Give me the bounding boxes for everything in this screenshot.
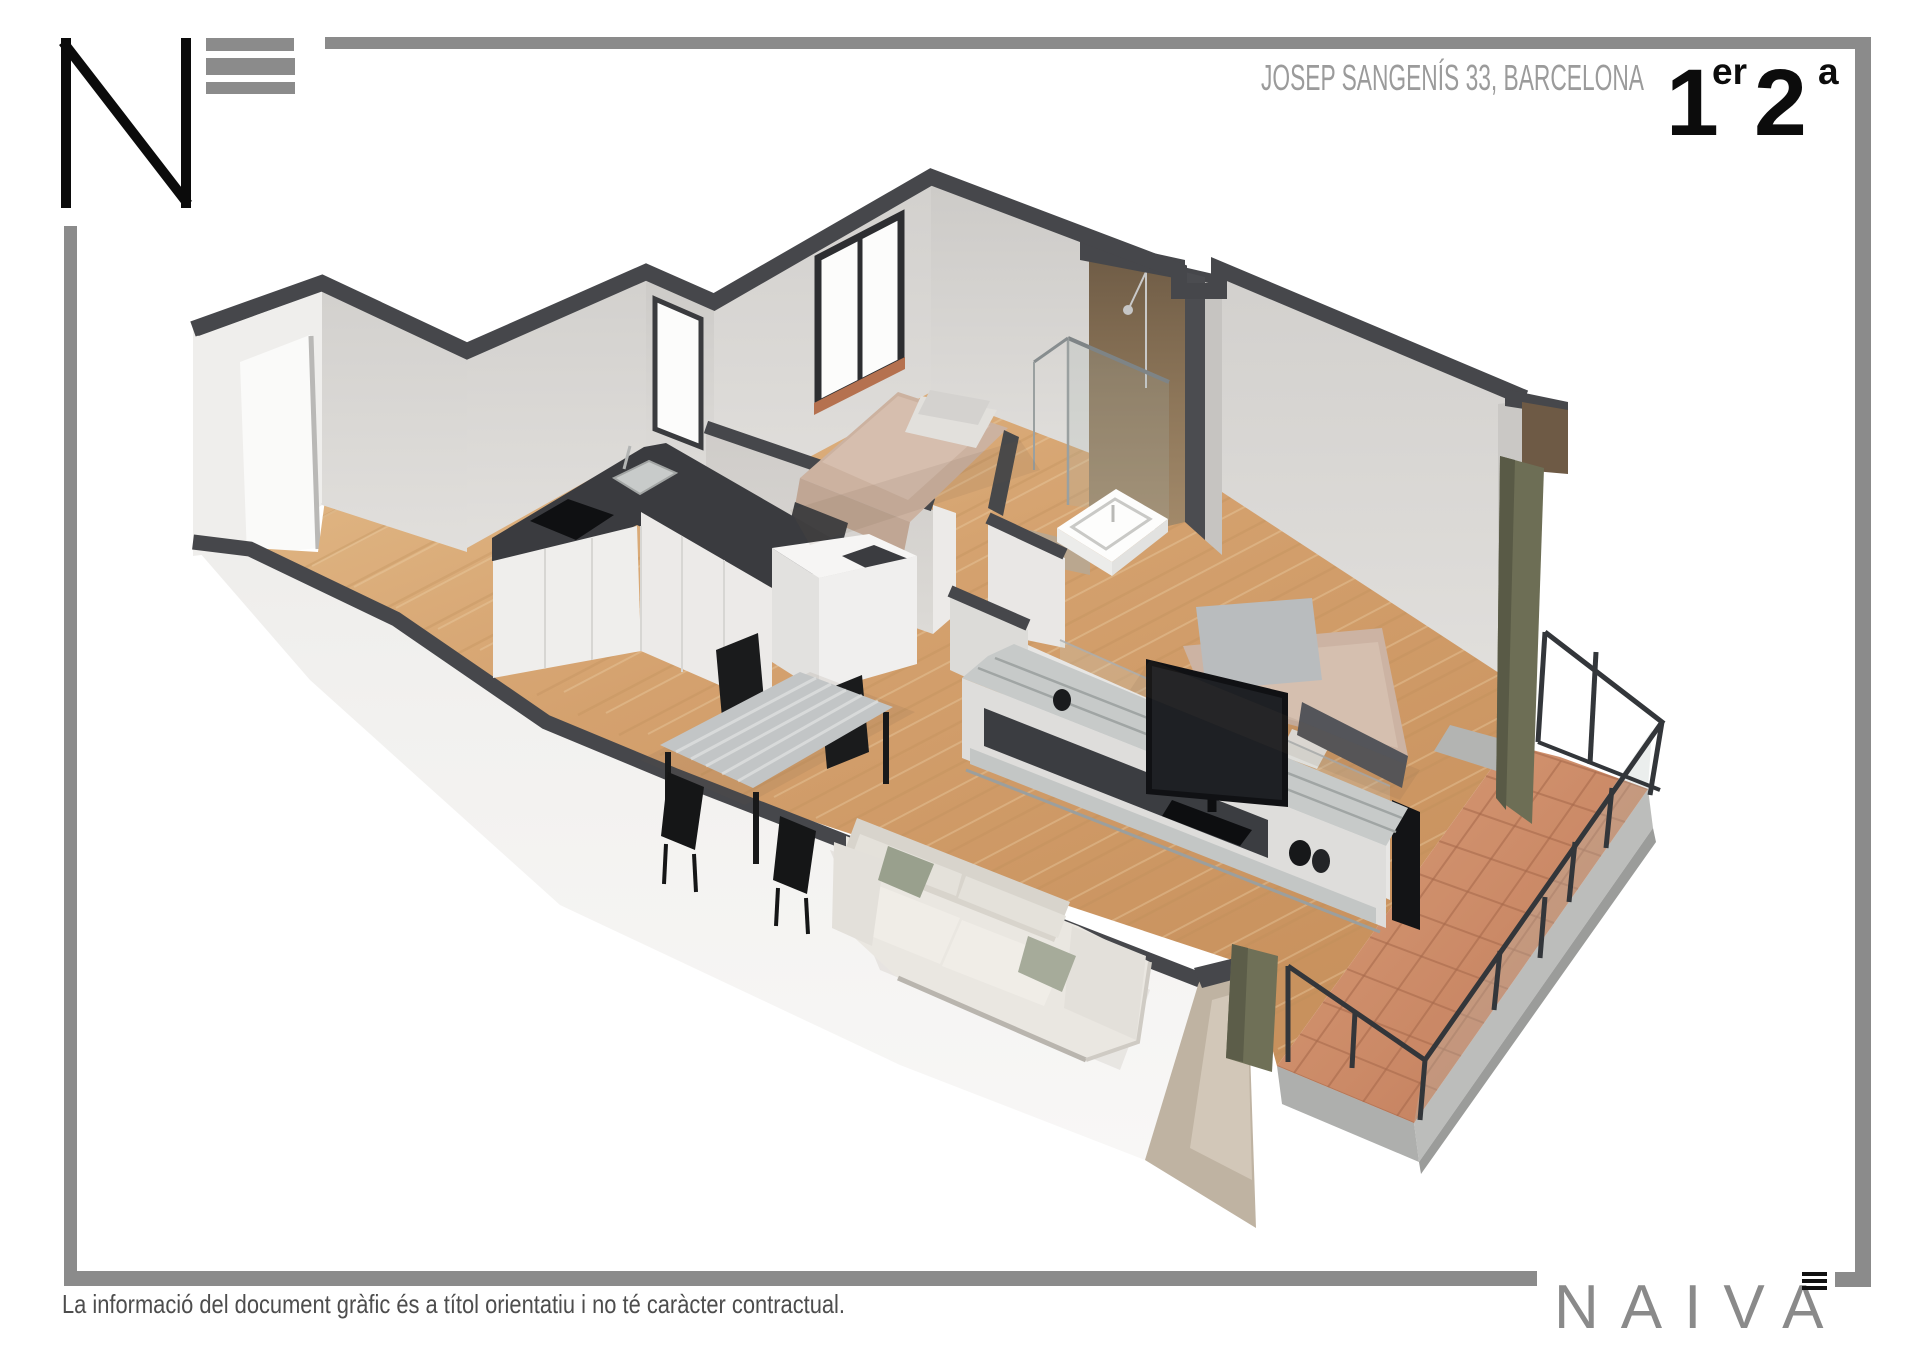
svg-text:La informació del document grà: La informació del document gràfic és a t… [62,1289,845,1319]
svg-text:1: 1 [1666,50,1719,156]
svg-text:2: 2 [1754,50,1807,156]
svg-text:er: er [1712,51,1747,92]
svg-text:NAIVA: NAIVA [1554,1273,1845,1342]
svg-text:a: a [1818,51,1839,92]
svg-text:JOSEP SANGENÍS 33, BARCELONA: JOSEP SANGENÍS 33, BARCELONA [1261,57,1644,98]
